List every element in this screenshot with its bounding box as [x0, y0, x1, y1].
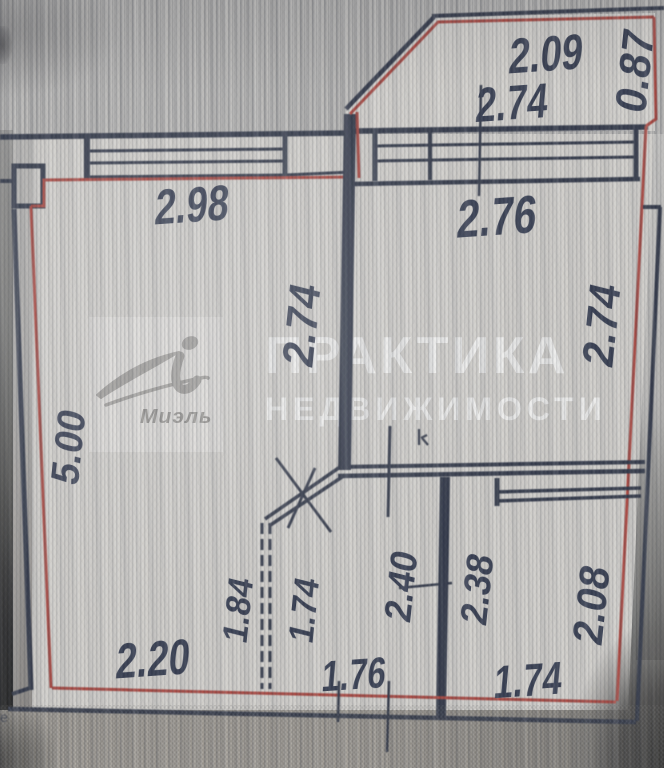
svg-text:е: е	[0, 709, 8, 725]
